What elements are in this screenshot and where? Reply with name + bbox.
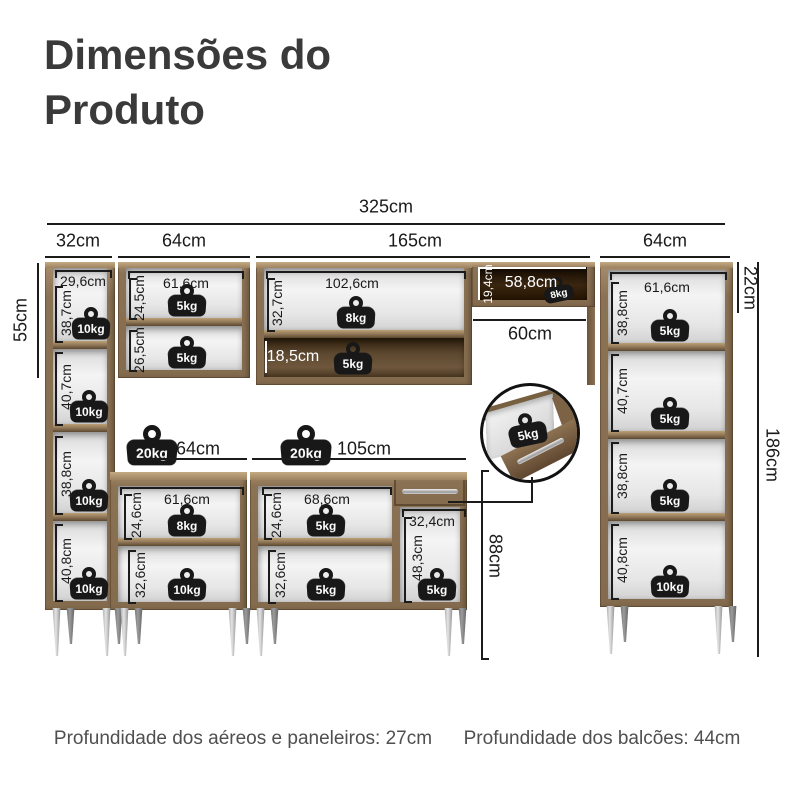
- shelf: [258, 538, 392, 546]
- dim-p1-s3: 38,8cm: [58, 451, 74, 497]
- right-tall-cabinet-top: [600, 262, 733, 268]
- weight-label: 5kg: [306, 515, 346, 537]
- dim-total-height: 186cm: [762, 428, 783, 482]
- shelf: [118, 538, 240, 546]
- cabinet-leg: [132, 608, 145, 644]
- depth-note-balcoes: Profundidade dos balcões: 44cm: [464, 728, 741, 750]
- cabinet-leg: [64, 608, 77, 644]
- dim-b1-inner-width: 61,6cm: [164, 491, 210, 507]
- dim-b2-s2: 32,6cm: [272, 552, 288, 598]
- weight-icon: 10kg: [70, 390, 108, 423]
- weight-icon: 5kg: [307, 504, 345, 537]
- dim-a2-width: 165cm: [388, 231, 442, 252]
- weight-label: 5kg: [650, 408, 690, 430]
- weight-label: 20kg: [126, 440, 178, 466]
- weight-label: 8kg: [167, 515, 207, 537]
- dim-line-hood-height: [478, 268, 480, 300]
- cabinet-leg: [254, 608, 267, 656]
- weight-icon: 5kg: [334, 342, 372, 375]
- dim-b1-width: 64cm: [176, 439, 220, 460]
- dim-p1-s2: 40,7cm: [58, 364, 74, 410]
- shelf: [608, 513, 725, 521]
- weight-label: 10kg: [650, 576, 690, 598]
- weight-label: 10kg: [167, 579, 207, 601]
- dim-a2-inner-width: 102,6cm: [325, 275, 379, 291]
- dim-b1-s1: 24,6cm: [128, 492, 144, 538]
- dim-p2-inner-width: 61,6cm: [644, 279, 690, 295]
- shelf: [608, 343, 725, 351]
- dim-a1-inner-width: 61,6cm: [163, 275, 209, 291]
- dim-stove-gap: 60cm: [508, 324, 552, 345]
- weight-label: 20kg: [280, 440, 332, 466]
- dim-line-a1-width: [118, 256, 250, 258]
- callout-leader-vertical: [531, 477, 533, 503]
- cabinet-leg: [604, 606, 617, 654]
- weight-label: 5kg: [417, 579, 457, 601]
- weight-label: 5kg: [333, 353, 373, 375]
- dim-a1-width: 64cm: [162, 231, 206, 252]
- dim-line-p2-width: [600, 256, 730, 258]
- page-title: Dimensões do Produto: [44, 28, 384, 137]
- cabinet-leg: [442, 608, 455, 656]
- dim-p1-top-height: 55cm: [11, 298, 32, 342]
- weight-label: 10kg: [69, 490, 109, 512]
- dim-a2-s1: 32,7cm: [269, 280, 285, 326]
- weight-icon: 10kg: [72, 307, 110, 340]
- cabinet-leg: [50, 608, 63, 656]
- dim-line-total-width: [47, 223, 725, 225]
- shelf: [608, 431, 725, 439]
- weight-icon: 10kg: [70, 479, 108, 512]
- cabinet-leg: [268, 608, 281, 644]
- cabinet-leg: [100, 608, 113, 656]
- shelf: [264, 330, 464, 338]
- dim-line-p1-top-height: [37, 263, 39, 378]
- dim-b1-s2: 32,6cm: [132, 552, 148, 598]
- dim-line-stove-gap: [473, 319, 586, 321]
- depth-note-aereos: Profundidade dos aéreos e paneleiros: 27…: [54, 728, 432, 750]
- base-cabinet-105-countertop: [250, 472, 467, 480]
- weight-icon: 5kg: [307, 568, 345, 601]
- dim-a1-s2: 26,5cm: [131, 327, 147, 373]
- dim-total-width: 325cm: [359, 197, 413, 218]
- cabinet-leg: [240, 608, 253, 644]
- weight-icon: 8kg: [337, 296, 375, 329]
- weight-icon: 10kg: [70, 567, 108, 600]
- dim-p2-s4: 40,8cm: [614, 537, 630, 583]
- dim-a2-s2: 18,5cm: [267, 348, 319, 366]
- dim-b2-width: 105cm: [337, 439, 391, 460]
- dim-line-a2-width: [256, 256, 590, 258]
- dim-p2-top: 22cm: [740, 266, 761, 310]
- dim-line-total-height: [757, 262, 759, 657]
- dim-p2-s1: 38,8cm: [614, 290, 630, 336]
- dim-line-p1-width: [45, 256, 112, 258]
- weight-label: 5kg: [650, 490, 690, 512]
- drawer-callout-circle: 5kg: [480, 383, 580, 483]
- dim-b2-niche-width: 32,4cm: [409, 513, 455, 529]
- dim-p1-s4: 40,8cm: [58, 538, 74, 584]
- dim-b2-inner-width: 68,6cm: [304, 491, 350, 507]
- cabinet-leg: [726, 606, 739, 642]
- cabinet-leg: [712, 606, 725, 654]
- dim-b-height: 88cm: [485, 534, 506, 578]
- cabinet-leg: [618, 606, 631, 642]
- weight-label: 10kg: [69, 401, 109, 423]
- product-dimensions-diagram: Dimensões do Produto: [0, 0, 800, 800]
- dim-p2-s3: 38,8cm: [614, 453, 630, 499]
- cabinet-leg: [456, 608, 469, 644]
- weight-icon: 10kg: [168, 568, 206, 601]
- weight-label: 10kg: [71, 318, 111, 340]
- dim-b2-niche-height: 48,3cm: [409, 535, 425, 581]
- weight-label: 5kg: [306, 579, 346, 601]
- dim-a1-s1: 24,5cm: [131, 275, 147, 321]
- dim-hood-width: 58,8cm: [505, 274, 557, 292]
- base-cabinet-64-countertop: [110, 472, 247, 480]
- weight-icon: 10kg: [651, 565, 689, 598]
- weight-label: 5kg: [167, 295, 207, 317]
- weight-icon: 5kg: [651, 309, 689, 342]
- weight-icon: 5kg: [168, 336, 206, 369]
- hood-side-panel: [587, 307, 595, 385]
- weight-icon: 8kg: [168, 504, 206, 537]
- weight-label: 8kg: [336, 307, 376, 329]
- drawer-handle: [402, 489, 458, 494]
- dim-hood-height: 19,4cm: [481, 264, 495, 303]
- dim-p1-width: 32cm: [56, 231, 100, 252]
- dim-p2-width: 64cm: [643, 231, 687, 252]
- dim-p1-inner-width: 29,6cm: [60, 273, 106, 289]
- weight-icon: 5kg: [651, 397, 689, 430]
- callout-leader-horizontal: [448, 501, 533, 503]
- weight-label: 5kg: [167, 347, 207, 369]
- weight-label: 10kg: [69, 578, 109, 600]
- weight-icon: 5kg: [651, 479, 689, 512]
- dim-b2-s1: 24,6cm: [268, 492, 284, 538]
- dim-p2-s2: 40,7cm: [614, 368, 630, 414]
- dim-p1-s1: 38,7cm: [58, 290, 74, 336]
- cabinet-leg: [226, 608, 239, 656]
- weight-label: 5kg: [650, 320, 690, 342]
